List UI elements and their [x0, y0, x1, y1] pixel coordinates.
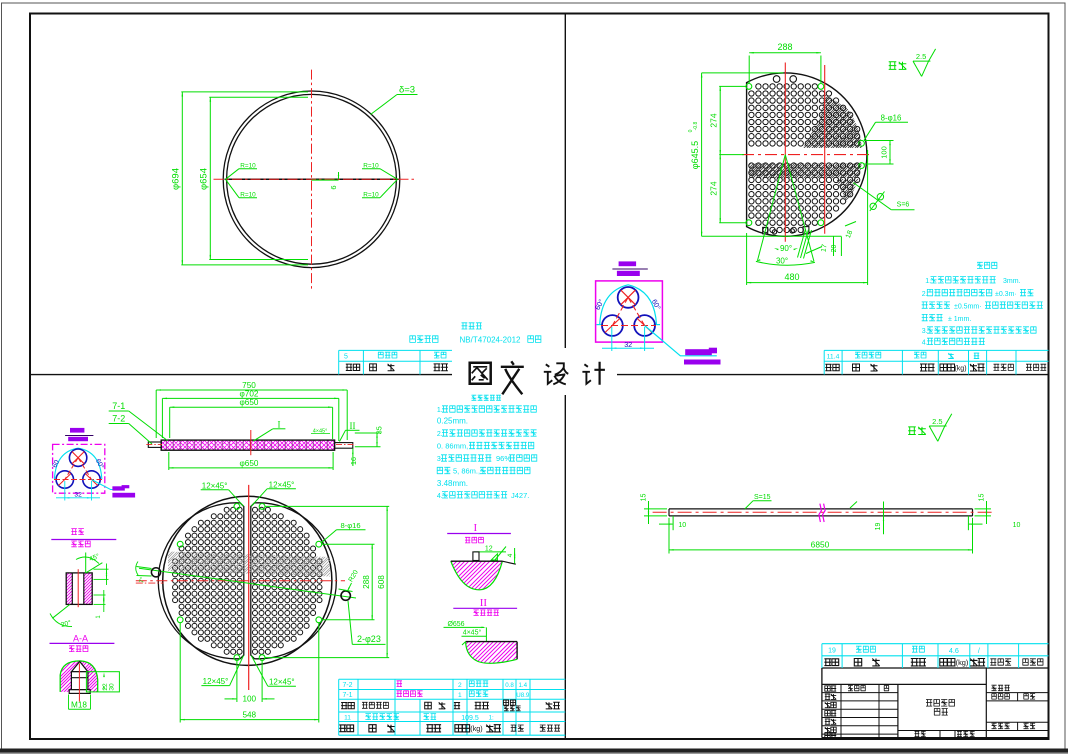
svg-text:1:: 1:	[489, 715, 494, 722]
svg-text:2.5: 2.5	[932, 417, 942, 426]
svg-text:480: 480	[784, 272, 799, 282]
svg-text:30°: 30°	[776, 257, 788, 266]
svg-text:δ=3: δ=3	[399, 85, 415, 96]
svg-text:15: 15	[979, 494, 986, 502]
svg-text:φ694: φ694	[171, 168, 182, 190]
svg-text:11.4: 11.4	[827, 354, 840, 361]
svg-text:1.: 1.	[925, 278, 931, 285]
svg-text:M18: M18	[71, 700, 87, 709]
svg-text:109.5: 109.5	[461, 715, 479, 722]
svg-text:32: 32	[624, 340, 632, 349]
svg-text:548: 548	[242, 710, 256, 719]
svg-text:0. 86mm,: 0. 86mm,	[437, 442, 468, 451]
svg-text:100: 100	[242, 695, 256, 704]
svg-text:6: 6	[329, 185, 338, 189]
svg-text:96%: 96%	[496, 454, 511, 463]
svg-text:φ645.5: φ645.5	[690, 141, 700, 169]
svg-text:3.48mm.: 3.48mm.	[437, 479, 468, 488]
svg-text:φ650: φ650	[240, 398, 259, 407]
svg-text:8-φ16: 8-φ16	[881, 113, 902, 122]
svg-text:7-1: 7-1	[112, 401, 125, 411]
svg-text:0.8: 0.8	[505, 682, 514, 689]
svg-text:3: 3	[437, 456, 441, 463]
svg-text:16: 16	[349, 457, 358, 465]
svg-text:7-2: 7-2	[342, 682, 352, 689]
svg-text:274: 274	[709, 113, 719, 127]
svg-text:15: 15	[641, 494, 648, 502]
svg-text:11: 11	[344, 715, 351, 722]
svg-text:±0.3m·: ±0.3m·	[995, 291, 1017, 298]
svg-text:4: 4	[507, 553, 514, 557]
svg-text:12×45°: 12×45°	[202, 481, 228, 490]
svg-text:/: /	[978, 646, 980, 655]
svg-text:4×45°: 4×45°	[463, 629, 482, 637]
svg-text:2.5: 2.5	[916, 52, 926, 61]
svg-text:4.: 4.	[437, 493, 443, 500]
svg-text:-0.8: -0.8	[693, 121, 699, 130]
svg-text:12: 12	[485, 545, 493, 552]
svg-text:12×45°: 12×45°	[203, 677, 229, 686]
svg-text:8-φ16: 8-φ16	[340, 521, 360, 530]
svg-text:4.: 4.	[922, 340, 928, 347]
svg-text:17: 17	[820, 244, 828, 253]
svg-text:II: II	[350, 421, 356, 431]
svg-text:(kg): (kg)	[470, 724, 482, 733]
svg-text:90°: 90°	[780, 244, 792, 253]
svg-text:5, 86m.,: 5, 86m.,	[453, 467, 480, 476]
svg-text:6850: 6850	[811, 540, 830, 550]
svg-text:J427.: J427.	[511, 491, 529, 500]
svg-text:3.: 3.	[922, 328, 928, 335]
svg-text:30: 30	[109, 683, 116, 691]
svg-text:32: 32	[74, 492, 82, 499]
svg-text:12×45°: 12×45°	[269, 480, 295, 489]
svg-text:7-2: 7-2	[112, 414, 125, 424]
svg-text:19: 19	[875, 523, 882, 531]
svg-text:274: 274	[709, 181, 719, 195]
svg-text:(kg): (kg)	[956, 658, 969, 667]
svg-text:19: 19	[828, 648, 836, 655]
svg-text:1.4: 1.4	[518, 682, 527, 689]
svg-text:4.6: 4.6	[949, 646, 959, 655]
svg-text:U8.9: U8.9	[516, 692, 530, 699]
svg-text:NB/T47024-2012: NB/T47024-2012	[460, 336, 521, 345]
svg-text:2.: 2.	[922, 291, 928, 298]
svg-text:I: I	[473, 522, 477, 534]
svg-text:288: 288	[777, 42, 792, 52]
svg-text:1: 1	[458, 692, 462, 699]
svg-text:S=6: S=6	[897, 202, 910, 209]
svg-text:288: 288	[362, 575, 371, 589]
svg-text:φ702: φ702	[240, 389, 259, 398]
svg-text:φ650: φ650	[240, 459, 259, 468]
svg-text:A-A: A-A	[73, 633, 88, 643]
svg-text:100: 100	[880, 146, 889, 159]
svg-text:35: 35	[375, 426, 384, 434]
svg-text:2-φ23: 2-φ23	[357, 634, 381, 644]
svg-text:± 1mm.: ± 1mm.	[948, 316, 971, 323]
svg-text:±0.5mm·: ±0.5mm·	[954, 303, 982, 310]
svg-text:12×45°: 12×45°	[269, 678, 295, 687]
svg-text:0.25mm.: 0.25mm.	[437, 417, 468, 426]
svg-text:(kg): (kg)	[954, 365, 966, 372]
svg-text:II: II	[480, 597, 488, 609]
svg-text:3mm.: 3mm.	[1003, 278, 1021, 285]
svg-text:2: 2	[458, 682, 462, 689]
svg-text:φ654: φ654	[199, 168, 210, 190]
svg-text:S=15: S=15	[754, 494, 771, 501]
svg-text:20: 20	[831, 245, 838, 253]
svg-text:7-1: 7-1	[342, 692, 352, 699]
svg-text:608: 608	[377, 575, 386, 589]
svg-text:2.: 2.	[437, 431, 443, 438]
svg-text:10: 10	[678, 522, 686, 529]
svg-text:10: 10	[1013, 522, 1021, 529]
svg-text:5: 5	[344, 353, 348, 360]
svg-text:I: I	[278, 419, 281, 429]
svg-text:1.: 1.	[437, 407, 443, 414]
